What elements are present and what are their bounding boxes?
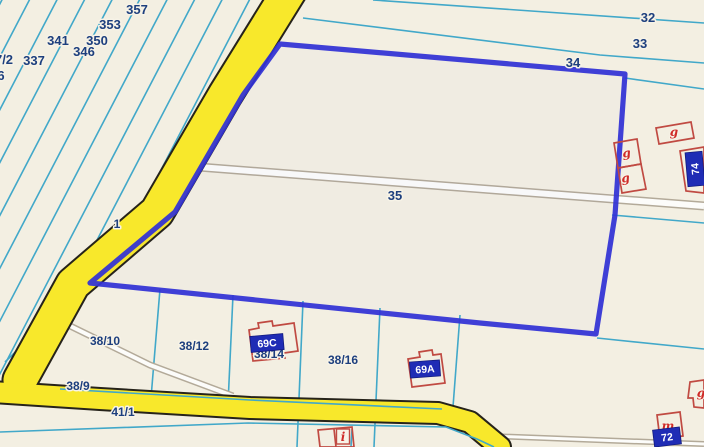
parcel-label-38-12: 38/12 xyxy=(179,339,209,353)
address-plate-text: 72 xyxy=(661,431,674,444)
parcel-label-6: 6 xyxy=(0,68,5,83)
building-letter-g: g xyxy=(697,386,704,400)
address-plate-text: 69C xyxy=(257,337,278,351)
parcel-label-35: 35 xyxy=(388,188,402,203)
address-plate-72[interactable]: 72 xyxy=(653,427,682,447)
parcel-label-33: 33 xyxy=(633,36,647,51)
parcel-label-7-2: 7/2 xyxy=(0,52,13,67)
parcel-label-346: 346 xyxy=(73,44,95,59)
parcel-label-38-16: 38/16 xyxy=(328,353,358,367)
parcel-label-1: 1 xyxy=(114,217,121,231)
parcel-label-353: 353 xyxy=(99,17,121,32)
address-plate-74[interactable]: 74 xyxy=(685,151,704,186)
building-letter-g: g xyxy=(670,125,678,139)
address-plate-text: 74 xyxy=(689,162,702,175)
parcel-label-41-1: 41/1 xyxy=(111,405,135,419)
parcel-label-34: 34 xyxy=(566,55,581,70)
parcel-label-337: 337 xyxy=(23,53,45,68)
cadastral-map-viewport[interactable]: 3573533413503463377/2632333435138/1038/1… xyxy=(0,0,704,447)
parcel-label-38-9: 38/9 xyxy=(66,379,90,393)
address-plate-69C[interactable]: 69C xyxy=(250,334,284,353)
parcel-label-357: 357 xyxy=(126,2,148,17)
address-plate-69A[interactable]: 69A xyxy=(409,360,440,378)
parcel-label-38-10: 38/10 xyxy=(90,334,120,348)
address-plate-text: 69A xyxy=(415,363,435,376)
parcel-label-341: 341 xyxy=(47,33,69,48)
parcel-label-32: 32 xyxy=(641,10,655,25)
building-letter-i: i xyxy=(341,430,346,444)
